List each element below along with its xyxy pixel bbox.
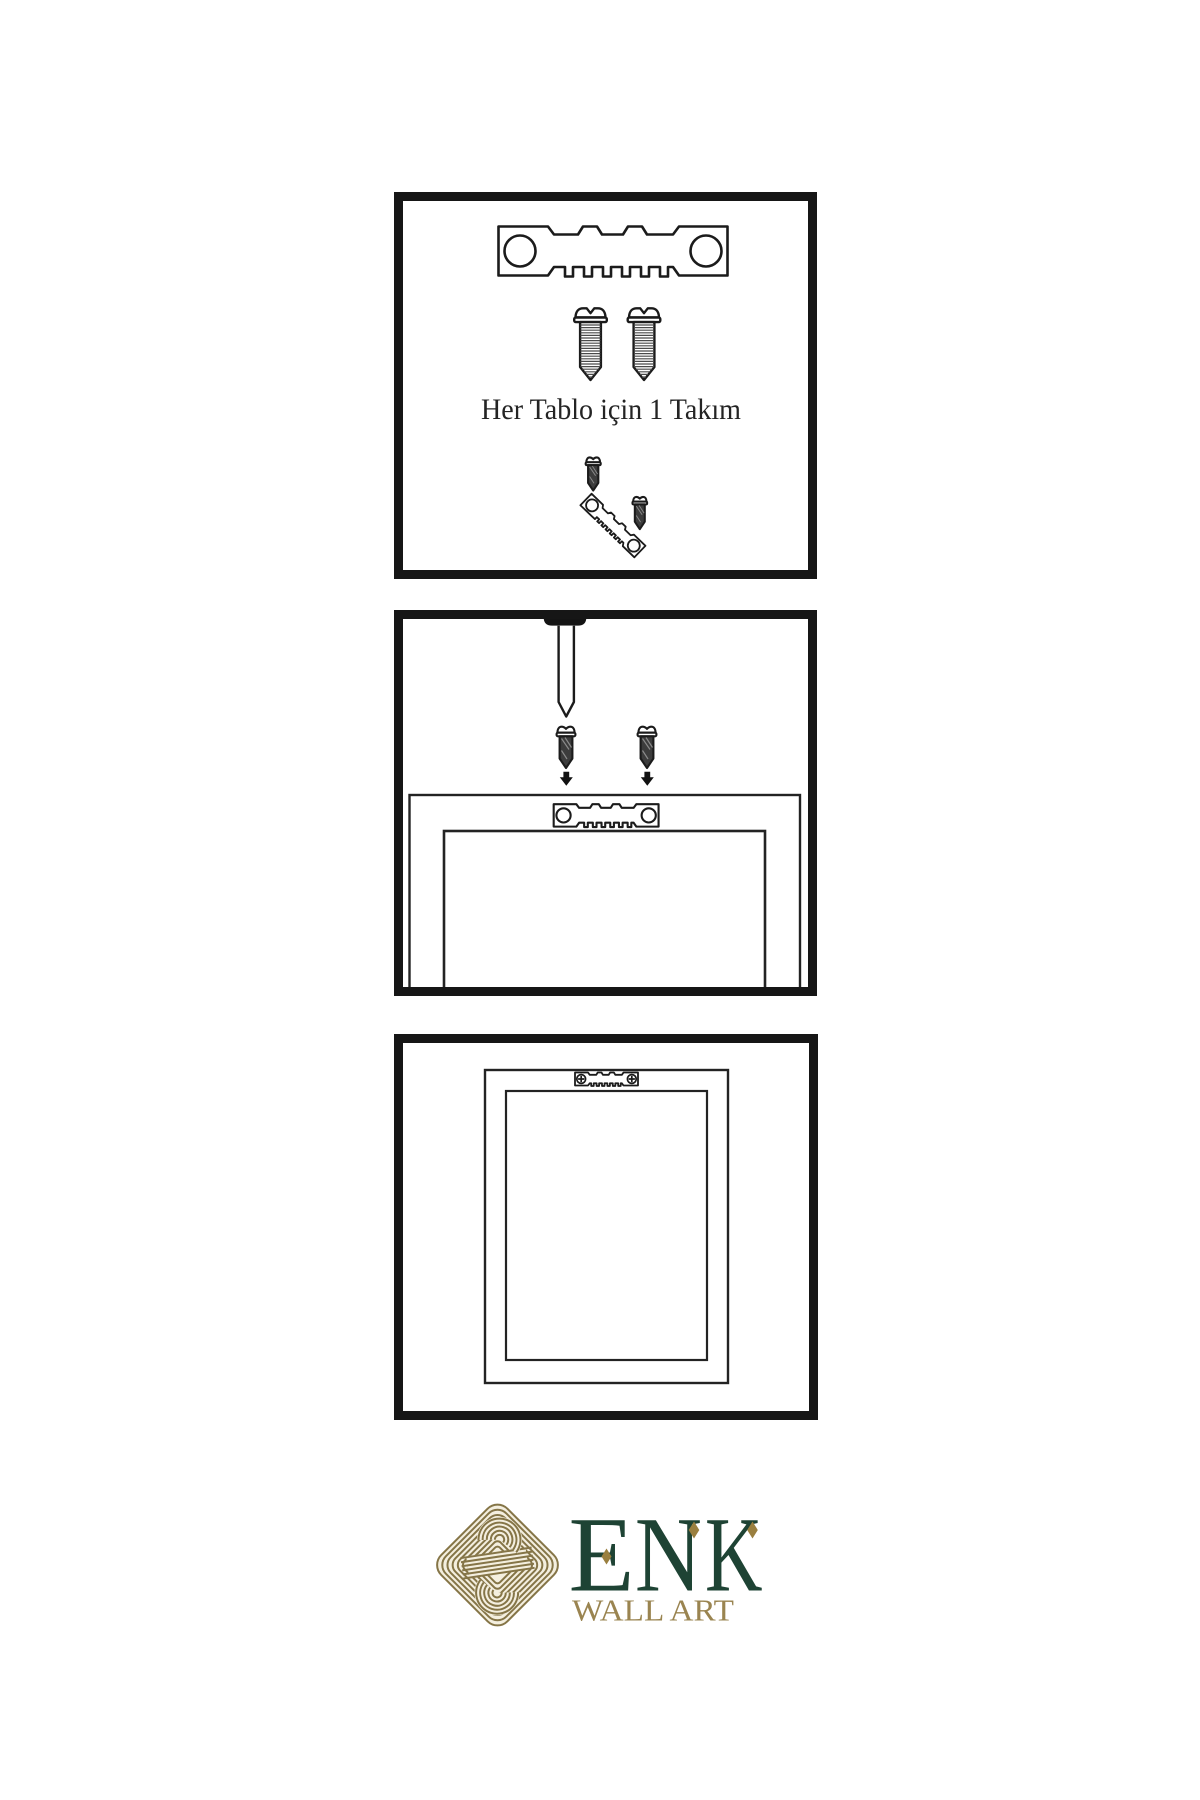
svg-text:Her Tablo için 1 Takım: Her Tablo için 1 Takım [481, 393, 741, 426]
svg-text:WALL ART: WALL ART [572, 1593, 734, 1628]
